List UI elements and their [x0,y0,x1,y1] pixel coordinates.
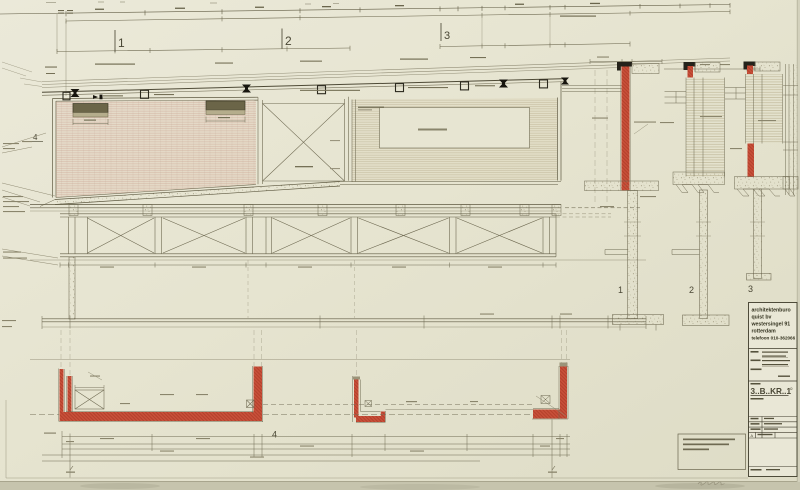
svg-text:2: 2 [689,285,694,295]
svg-text:1: 1 [618,285,623,295]
svg-text:1: 1 [118,36,125,50]
svg-text:4: 4 [33,133,38,142]
svg-text:3: 3 [748,284,753,294]
svg-text:westersingel 91: westersingel 91 [751,322,791,328]
svg-text:4: 4 [272,430,277,440]
svg-text:3: 3 [444,30,450,42]
svg-text:3..B..KR..1: 3..B..KR..1 [751,387,792,396]
svg-text:architektenburo: architektenburo [752,308,791,314]
svg-text:quist bv: quist bv [752,315,772,321]
svg-text:rotterdam: rotterdam [752,329,777,335]
svg-text:2: 2 [285,34,292,48]
svg-text:telefoon 010-362066: telefoon 010-362066 [752,336,796,341]
